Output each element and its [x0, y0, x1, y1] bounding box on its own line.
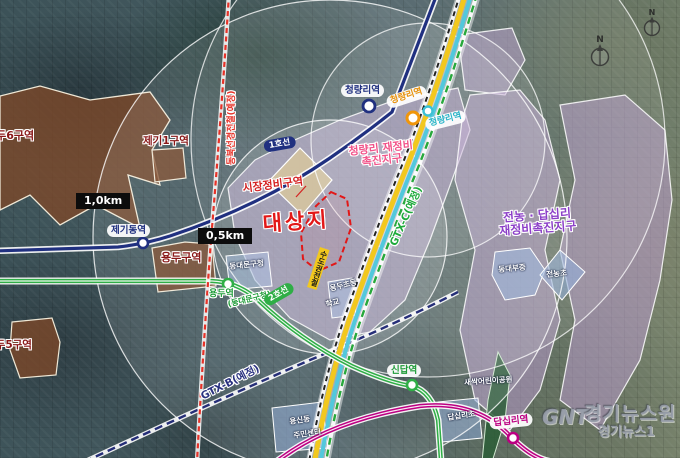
scale-1km-label: 1,0km [76, 193, 130, 209]
sindap-station-dot [407, 380, 417, 390]
cheongnyangni-jungang-dot [407, 112, 419, 124]
station-label-sindap: 신답역 [387, 364, 421, 377]
station-label-jegidong: 제기동역 [107, 224, 150, 237]
dapsimni-station-dot [508, 433, 518, 443]
map-overlay-svg: N N [0, 0, 680, 458]
zone-label-yongdu: 용두구역 [161, 252, 201, 264]
watermark-subtitle: 경기뉴스1 [598, 426, 655, 440]
watermark-title: 경기뉴스원 [584, 404, 676, 425]
zone-label-yongdu6: 용두6구역 [0, 130, 34, 142]
compass-small-n: N [649, 8, 656, 17]
site-label: 대상지 [262, 208, 330, 236]
zone-label-jeonnong: 전농 · 답십리 재정비촉진지구 [498, 207, 577, 239]
redevelopment-satellite-map: N N 1,0km 0,5km 용두6구역 제기1구역 용두구역 용두5구역 시… [0, 0, 680, 458]
watermark-logo: GNT [542, 406, 589, 428]
compass-small: N [645, 8, 660, 36]
scale-500m-label: 0,5km [198, 228, 252, 244]
zone-label-jegi1: 제기1구역 [143, 136, 189, 148]
cheongnyangni-line1-dot [363, 100, 375, 112]
jegidong-station-dot [138, 238, 148, 248]
station-label-cheongnyangni-line1: 청량리역 [341, 84, 384, 97]
compass-large-n: N [596, 35, 604, 45]
zone-label-yongdu5: 용두5구역 [0, 340, 32, 352]
yongdu-station-dot [223, 279, 233, 289]
cheongnyangni-gyeongchun-dot [424, 107, 433, 116]
dongbuk-line-label: 동북선경전철(예정) [228, 91, 238, 165]
